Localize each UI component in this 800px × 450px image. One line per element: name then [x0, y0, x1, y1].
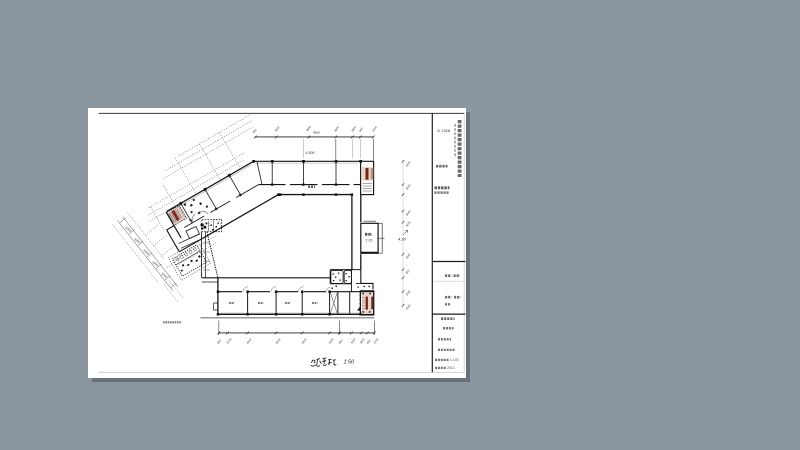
svg-text:2.20: 2.20 — [366, 239, 373, 243]
svg-text:1:50: 1:50 — [344, 360, 355, 366]
svg-text:4.500: 4.500 — [306, 151, 315, 155]
svg-text:4500: 4500 — [313, 131, 320, 135]
svg-text:2013: 2013 — [447, 366, 455, 370]
svg-text:4.20: 4.20 — [398, 237, 407, 242]
svg-text:G 1328: G 1328 — [437, 128, 451, 133]
svg-text:1:100: 1:100 — [450, 358, 459, 362]
